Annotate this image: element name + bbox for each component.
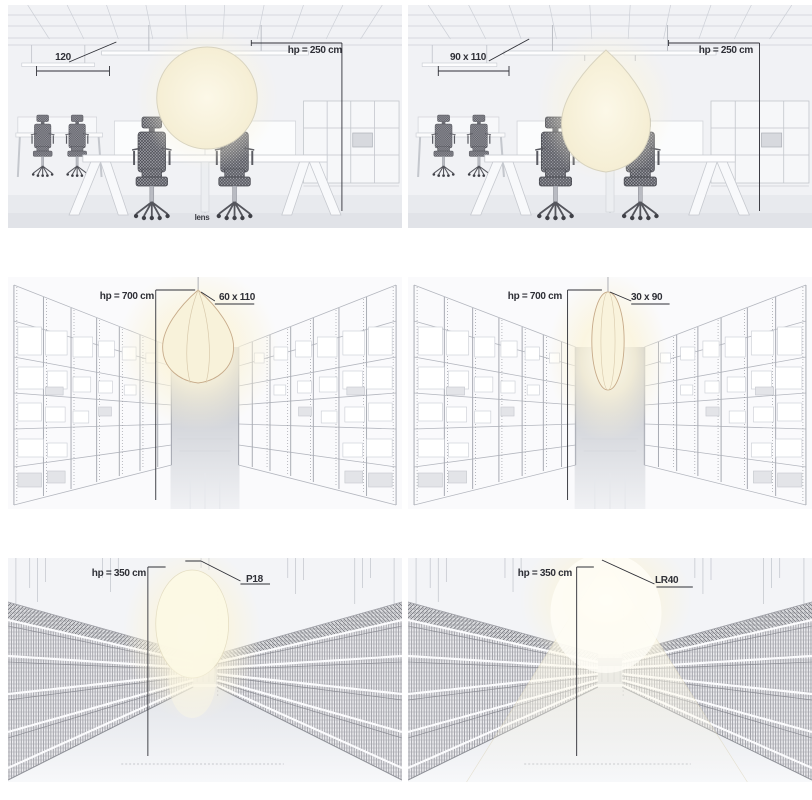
height-label: hp = 700 cm — [90, 291, 154, 302]
size-label: 120 — [38, 52, 88, 63]
drop-lamp — [537, 29, 674, 181]
size-label: LR40 — [655, 575, 699, 586]
height-label: hp = 350 cm — [84, 568, 146, 579]
supermarket-scene-illustration — [8, 558, 402, 782]
warehouse-scene-illustration — [408, 277, 812, 509]
office-scene-illustration — [8, 5, 402, 228]
height-label: hp = 350 cm — [508, 568, 572, 579]
height-label: hp = 250 cm — [258, 45, 342, 56]
supermarket-scene-illustration — [408, 558, 812, 782]
office-scene-illustration — [408, 5, 812, 228]
warehouse-panel-ellipse: hp = 700 cm 30 x 90 — [408, 277, 812, 509]
warehouse-row: hp = 700 cm 60 x 110 hp = 700 cm 30 x 90 — [0, 277, 812, 509]
office-panel-drop: 90 x 110 hp = 250 cm — [408, 5, 812, 228]
catalog-page: 120 hp = 250 cm lens 90 x 110 hp = 250 c… — [0, 0, 812, 800]
product-caption: lens — [180, 212, 224, 223]
supermarket-row: hp = 350 cm P18 hp = 350 cm LR40 — [0, 558, 812, 782]
size-label: 30 x 90 — [631, 292, 677, 303]
warehouse-scene-illustration — [8, 277, 402, 509]
size-label: 90 x 110 — [436, 52, 500, 63]
height-label: hp = 250 cm — [669, 45, 753, 56]
office-panel-sphere: 120 hp = 250 cm lens — [8, 5, 402, 228]
size-label: P18 — [246, 574, 282, 585]
supermarket-panel-cone: hp = 350 cm LR40 — [408, 558, 812, 782]
size-label: 60 x 110 — [219, 292, 269, 303]
sphere-lamp — [136, 26, 278, 170]
warehouse-panel-drop: hp = 700 cm 60 x 110 — [8, 277, 402, 509]
supermarket-panel-sphere: hp = 350 cm P18 — [8, 558, 402, 782]
office-row: 120 hp = 250 cm lens 90 x 110 hp = 250 c… — [0, 5, 812, 228]
height-label: hp = 700 cm — [498, 291, 562, 302]
